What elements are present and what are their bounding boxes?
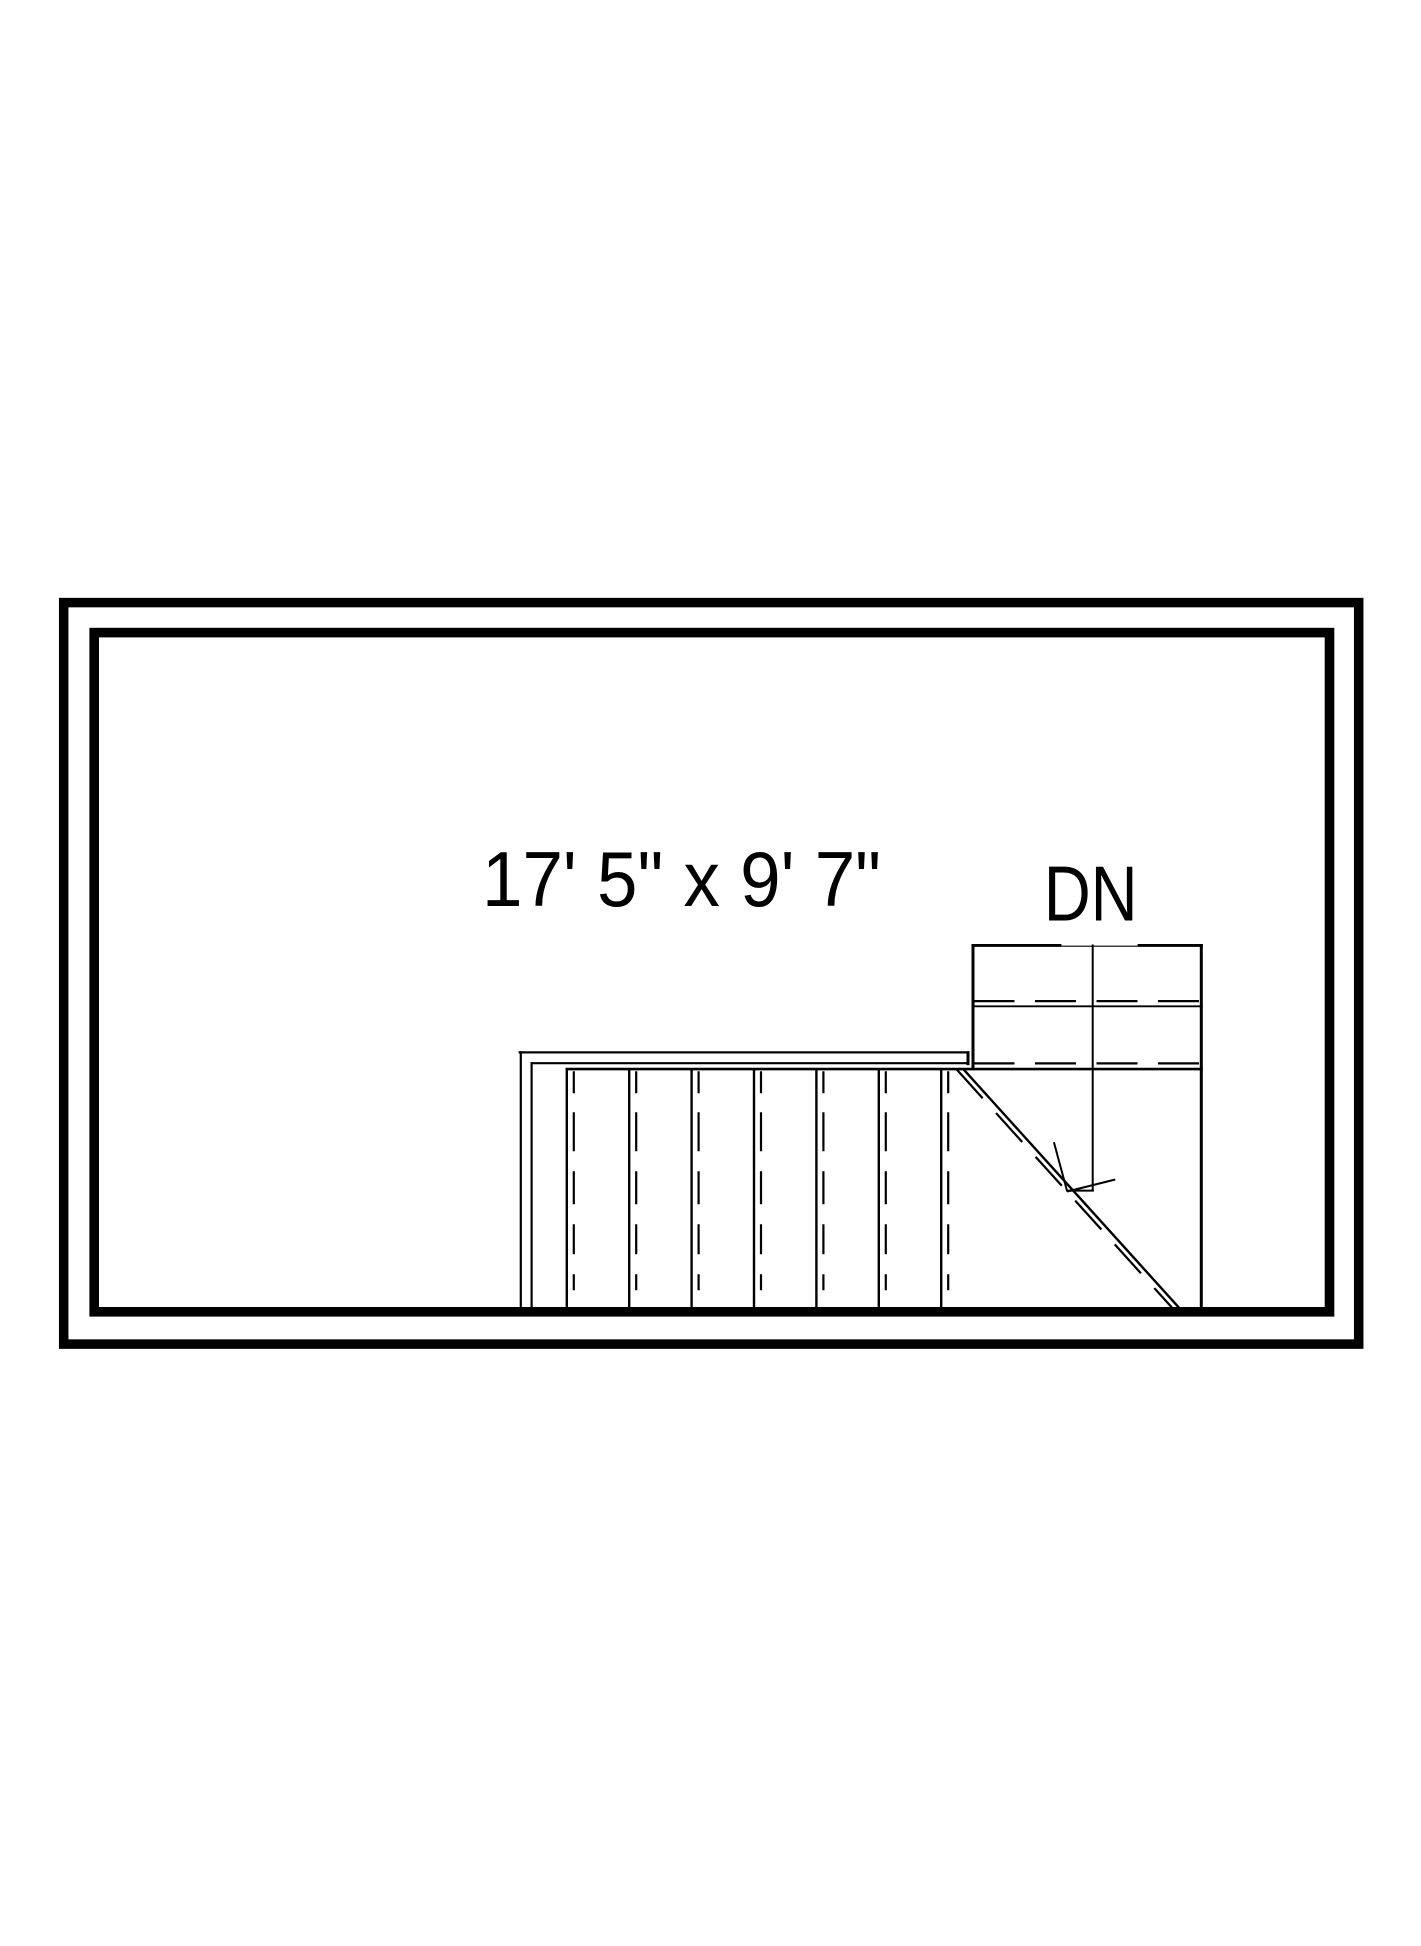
svg-text:DN: DN [1044,850,1138,938]
svg-text:17' 5" x 9' 7": 17' 5" x 9' 7" [482,837,881,923]
